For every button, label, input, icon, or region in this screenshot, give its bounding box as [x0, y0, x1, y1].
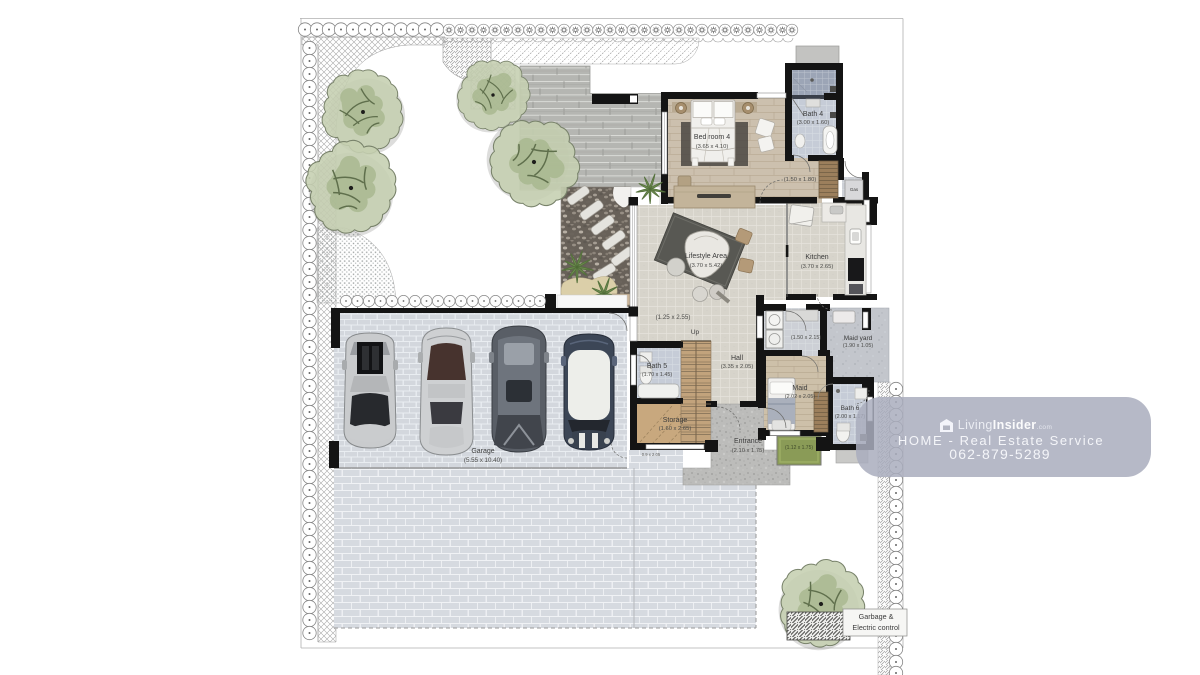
- svg-text:Maid yard: Maid yard: [844, 335, 873, 342]
- svg-text:(3.65 x 4.10): (3.65 x 4.10): [696, 144, 729, 150]
- svg-text:Electric control: Electric control: [852, 623, 900, 632]
- svg-text:Kitchen: Kitchen: [805, 254, 828, 261]
- svg-text:(1.50 x 1.80): (1.50 x 1.80): [784, 177, 817, 183]
- svg-text:Bath 4: Bath 4: [803, 111, 823, 118]
- svg-text:(5.55 x 10.40): (5.55 x 10.40): [464, 457, 502, 464]
- svg-text:0.9 x 2.05: 0.9 x 2.05: [642, 452, 661, 457]
- svg-text:(1.25 x 2.55): (1.25 x 2.55): [656, 314, 691, 321]
- svg-text:(3.70 x 2.65): (3.70 x 2.65): [801, 264, 834, 270]
- svg-text:Bath 5: Bath 5: [647, 363, 667, 370]
- svg-text:Entrance: Entrance: [734, 438, 762, 445]
- svg-text:(3.35 x 2.05): (3.35 x 2.05): [721, 364, 754, 370]
- svg-text:Garbage &: Garbage &: [859, 612, 894, 621]
- svg-text:(2.10 x 1.75): (2.10 x 1.75): [732, 448, 765, 454]
- svg-text:Up: Up: [691, 329, 700, 336]
- svg-text:Lifestyle Area: Lifestyle Area: [685, 253, 727, 260]
- svg-text:Gas: Gas: [850, 187, 859, 192]
- svg-text:Garage: Garage: [471, 448, 494, 455]
- svg-text:062-879-5289: 062-879-5289: [949, 446, 1051, 462]
- svg-text:(3.70 x 5.42): (3.70 x 5.42): [690, 263, 723, 269]
- svg-text:Maid: Maid: [792, 385, 807, 392]
- svg-text:Bath 6: Bath 6: [841, 405, 860, 412]
- svg-text:(1.70 x 1.45): (1.70 x 1.45): [642, 372, 672, 378]
- svg-text:(3.00 x 1.60): (3.00 x 1.60): [797, 120, 830, 126]
- svg-text:(1.90 x 1.05): (1.90 x 1.05): [843, 343, 873, 349]
- svg-text:(1.50 x 2.15): (1.50 x 2.15): [791, 335, 821, 341]
- svg-text:Storage: Storage: [663, 417, 688, 424]
- svg-text:(1.60 x 2.65): (1.60 x 2.65): [659, 426, 692, 432]
- svg-text:Bed room 4: Bed room 4: [694, 134, 730, 141]
- svg-text:(2.02 x 2.05): (2.02 x 2.05): [785, 394, 815, 400]
- svg-text:Hall: Hall: [731, 355, 744, 362]
- svg-text:(1.12 x 1.75): (1.12 x 1.75): [785, 445, 813, 451]
